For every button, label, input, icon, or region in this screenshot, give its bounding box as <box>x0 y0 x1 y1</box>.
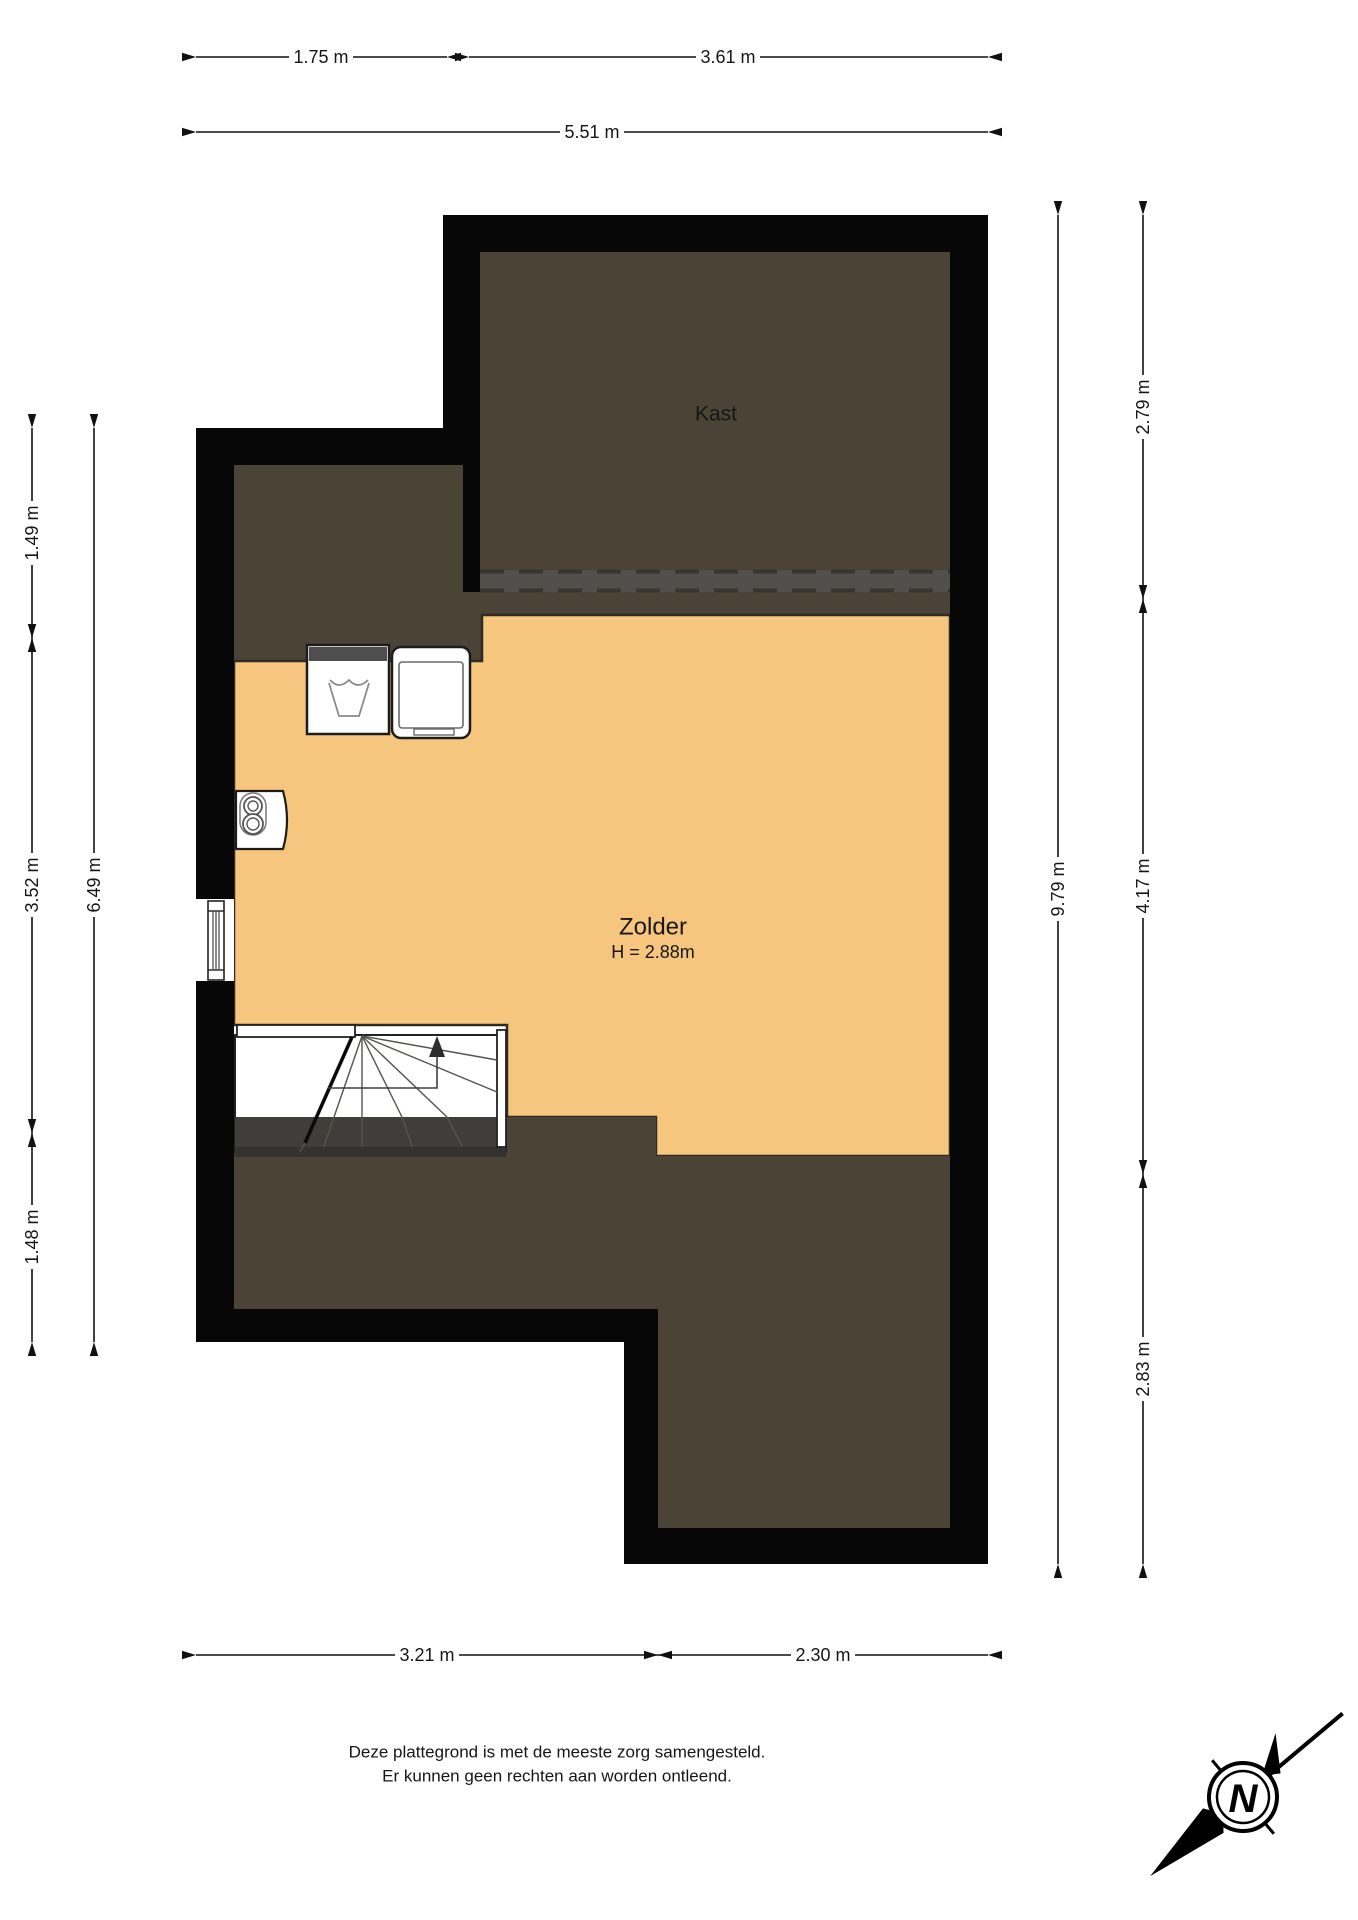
stair-under-band <box>235 1117 506 1147</box>
kast-area <box>480 252 950 615</box>
dim-bottom-1: 3.21 m <box>399 1645 454 1665</box>
disclaimer-line1: Deze plattegrond is met de meeste zorg s… <box>349 1743 766 1762</box>
wall-right <box>950 215 988 1564</box>
left-wall-window <box>196 899 234 981</box>
kast-label: Kast <box>695 403 737 426</box>
left-low-area <box>234 465 482 661</box>
wall-step <box>624 1309 658 1564</box>
dim-left-2: 3.52 m <box>22 857 42 912</box>
dim-top-2: 3.61 m <box>700 47 755 67</box>
dimensions-top: 1.75 m 3.61 m 5.51 m <box>196 47 988 142</box>
dim-bottom-2: 2.30 m <box>795 1645 850 1665</box>
wall-bottom <box>624 1528 988 1564</box>
dimensions-left: 1.49 m 3.52 m 1.48 m 6.49 m <box>22 428 104 1342</box>
dim-left-total: 6.49 m <box>84 857 104 912</box>
dryer-icon <box>392 647 470 738</box>
boiler-dial-top-inner <box>248 801 258 811</box>
dimensions-right: 9.79 m 2.79 m 4.17 m 2.83 m <box>1048 215 1153 1564</box>
stairs <box>235 1025 506 1157</box>
dim-top-1: 1.75 m <box>293 47 348 67</box>
dim-top-total: 5.51 m <box>564 122 619 142</box>
disclaimer-line2: Er kunnen geen rechten aan worden ontlee… <box>382 1767 732 1786</box>
stair-newel <box>497 1030 506 1147</box>
boiler-icon <box>236 791 287 849</box>
washer-top-band <box>309 647 387 661</box>
zolder-label: Zolder <box>619 914 687 941</box>
floorplan-page: Kast Zolder H = 2.88m 1.75 m 3.61 m 5.51… <box>0 0 1358 1920</box>
zolder-height-label: H = 2.88m <box>611 942 695 962</box>
dimensions-bottom: 3.21 m 2.30 m <box>196 1645 988 1665</box>
dim-right-3: 2.83 m <box>1133 1341 1153 1396</box>
compass-north-icon: N <box>1119 1677 1358 1913</box>
dim-right-total: 9.79 m <box>1048 861 1068 916</box>
wall-kast-left <box>443 215 480 465</box>
wall-left-bottom <box>196 1309 658 1342</box>
knee-wall-band <box>480 570 950 592</box>
wall-top <box>443 215 988 252</box>
wall-interior <box>463 465 480 592</box>
wall-left <box>196 428 234 1342</box>
compass-n-label: N <box>1229 1777 1259 1821</box>
washing-machine-icon <box>307 645 389 734</box>
dryer-door <box>399 662 463 728</box>
boiler-dial-bottom-inner <box>247 818 259 830</box>
dim-left-1: 1.49 m <box>22 505 42 560</box>
stair-under-band-dark <box>235 1147 506 1157</box>
floorplan-canvas: Kast Zolder H = 2.88m 1.75 m 3.61 m 5.51… <box>0 0 1358 1920</box>
dim-right-2: 4.17 m <box>1133 858 1153 913</box>
dim-right-1: 2.79 m <box>1133 379 1153 434</box>
dryer-vent <box>414 729 454 735</box>
dim-left-3: 1.48 m <box>22 1209 42 1264</box>
wall-left-top <box>196 428 480 465</box>
stair-landing <box>237 1025 355 1037</box>
